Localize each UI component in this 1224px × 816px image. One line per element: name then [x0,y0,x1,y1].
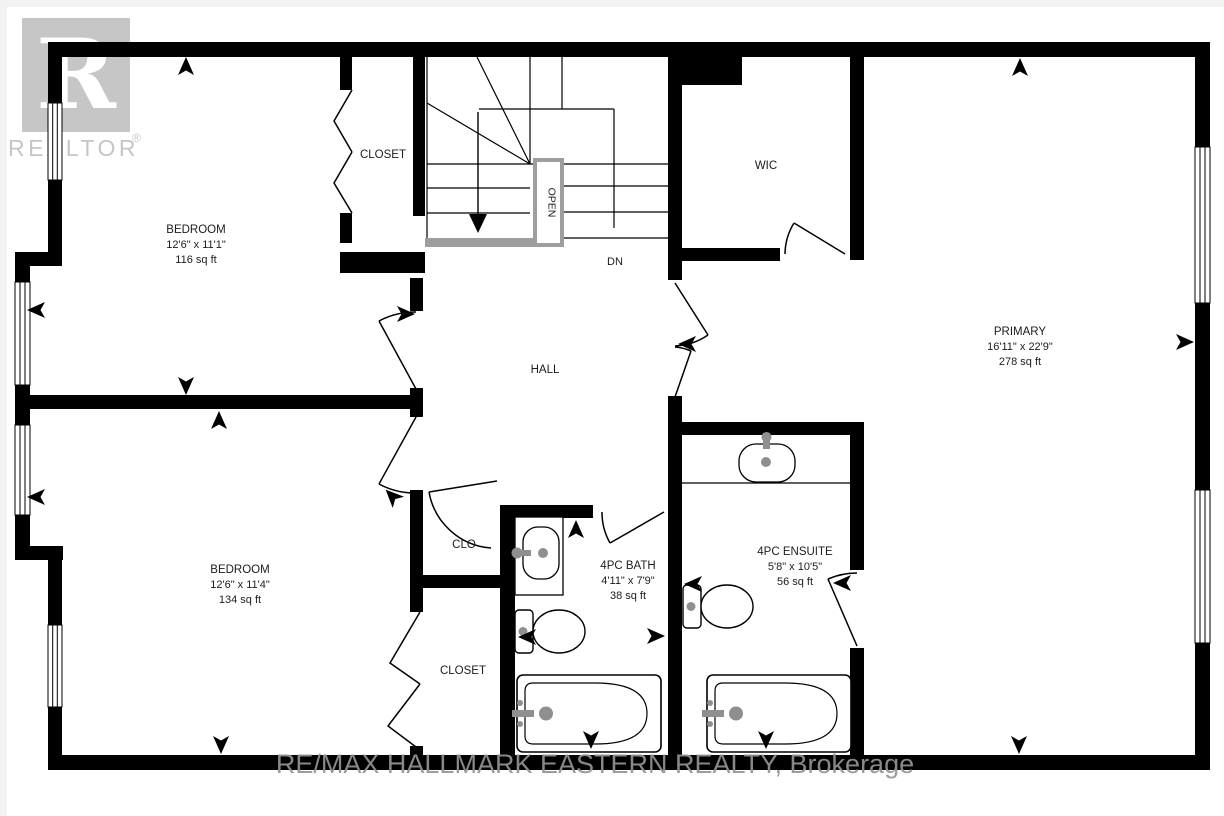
room-label-bath: 4PC BATH 4'11" x 7'9" 38 sq ft [600,560,655,602]
stair-dn-label: DN [607,256,623,268]
room-label-primary: PRIMARY 16'11" x 22'9" 278 sq ft [987,326,1053,368]
door-clo [429,481,497,548]
floorplan-page: R REALTOR ® [0,0,1224,816]
room-label-wic: WIC [755,160,777,172]
door-bedroom-1 [379,312,416,389]
window [15,282,30,385]
room-dimensions: 12'6" x 11'1" [166,239,226,251]
direction-arrow [1176,334,1194,350]
room-label-closet-bottom: CLOSET [440,665,486,677]
room-label-ensuite: 4PC ENSUITE 5'8" x 10'5" 56 sq ft [757,546,833,588]
room-area: 134 sq ft [219,594,261,606]
room-area: 38 sq ft [610,590,646,602]
room-label-hall: HALL [531,364,560,376]
room-label-closet-top: CLOSET [360,149,406,161]
window [15,425,30,515]
room-label-bedroom-2: BEDROOM 12'6" x 11'4" 134 sq ft [210,564,270,606]
direction-arrow [1011,736,1027,754]
direction-arrow [213,736,229,754]
door-wic [785,223,845,254]
door-bedroom-2 [379,417,416,493]
ensuite-vanity [682,432,850,483]
bifold-closet-top [334,90,352,213]
bath-toilet [515,610,585,653]
door-bath [602,512,664,543]
room-name: BEDROOM [166,224,225,236]
direction-arrow [1012,58,1028,76]
window [1195,147,1210,303]
door-swing-arrow [380,484,404,508]
ensuite-tub [702,675,851,752]
window [48,625,62,707]
room-dimensions: 5'8" x 10'5" [768,561,822,573]
realtor-wordmark: REALTOR [8,135,139,161]
bath-vanity [512,517,564,595]
stair-railing [425,238,533,247]
room-dimensions: 4'11" x 7'9" [601,575,654,587]
window [48,103,62,180]
room-dimensions: 16'11" x 22'9" [987,341,1053,353]
room-labels: BEDROOM 12'6" x 11'1" 116 sq ft CLOSET W… [166,149,1053,677]
doors [334,90,857,750]
direction-arrow [178,57,194,75]
registered-symbol: ® [132,131,141,145]
walls [15,42,1210,770]
staircase: OPEN DN [425,57,668,268]
door-swing-arrow [833,575,851,591]
direction-arrow [568,520,584,538]
stair-open-label: OPEN [546,188,558,218]
room-name: BEDROOM [210,564,269,576]
room-name: PRIMARY [994,326,1047,338]
floorplan-drawing: R REALTOR ® [0,0,1224,816]
room-area: 116 sq ft [175,254,216,266]
direction-arrow [647,628,665,644]
brokerage-watermark: RE/MAX HALLMARK EASTERN REALTY, Brokerag… [276,749,914,779]
ensuite-toilet [683,585,753,628]
bifold-closet-bottom [388,612,420,750]
window [1195,490,1210,643]
stair-down-arrowhead [469,214,487,233]
room-name: 4PC BATH [600,560,655,572]
realtor-logo-watermark: R REALTOR ® [8,18,141,161]
bath-tub [512,675,661,752]
room-dimensions: 12'6" x 11'4" [210,579,270,591]
room-area: 278 sq ft [999,356,1041,368]
room-label-bedroom-1: BEDROOM 12'6" x 11'1" 116 sq ft [166,224,226,266]
direction-arrow [178,377,194,395]
room-label-clo: CLO [452,539,476,551]
room-area: 56 sq ft [777,576,813,588]
room-name: 4PC ENSUITE [757,546,833,558]
direction-arrow [211,411,227,429]
